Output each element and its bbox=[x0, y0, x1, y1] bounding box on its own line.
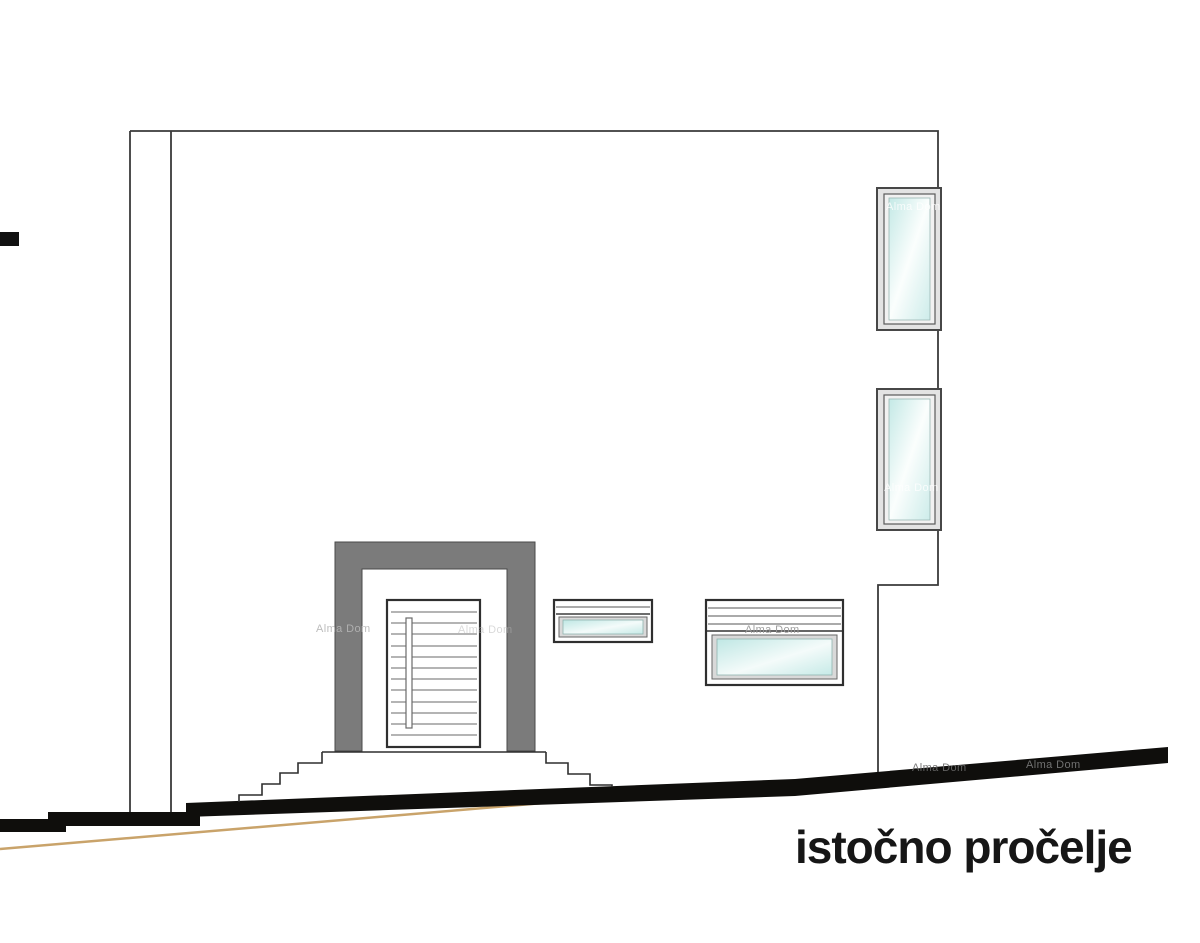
watermark: Alma Dom bbox=[745, 624, 800, 636]
ground-band bbox=[186, 747, 1168, 817]
left-edge-mark bbox=[0, 232, 19, 246]
watermark: Alma Dom bbox=[912, 762, 967, 774]
watermark: Alma Dom bbox=[458, 624, 513, 636]
ground-step-left bbox=[0, 819, 66, 832]
watermark: Alma Dom bbox=[886, 201, 941, 213]
window-lower-right bbox=[877, 389, 941, 530]
steps-right bbox=[546, 752, 612, 787]
window-glass bbox=[889, 399, 930, 520]
window-small-horizontal bbox=[554, 600, 652, 642]
ground-step-mid bbox=[48, 812, 200, 826]
entrance-door bbox=[387, 600, 480, 747]
elevation-sheet: Alma Dom Alma Dom Alma Dom Alma Dom Alma… bbox=[0, 0, 1200, 943]
window-glass bbox=[889, 198, 930, 320]
watermark: Alma Dom bbox=[1026, 759, 1081, 771]
door-frame bbox=[387, 600, 480, 747]
watermark: Alma Dom bbox=[316, 623, 371, 635]
window-glass bbox=[563, 620, 643, 634]
steps-left bbox=[239, 752, 322, 802]
elevation-drawing bbox=[0, 0, 1200, 943]
window-large-horizontal bbox=[706, 600, 843, 685]
window-glass bbox=[717, 639, 832, 675]
watermark: Alma Dom bbox=[884, 482, 939, 494]
drawing-title: istočno pročelje bbox=[795, 822, 1132, 873]
door-handle bbox=[406, 618, 412, 728]
